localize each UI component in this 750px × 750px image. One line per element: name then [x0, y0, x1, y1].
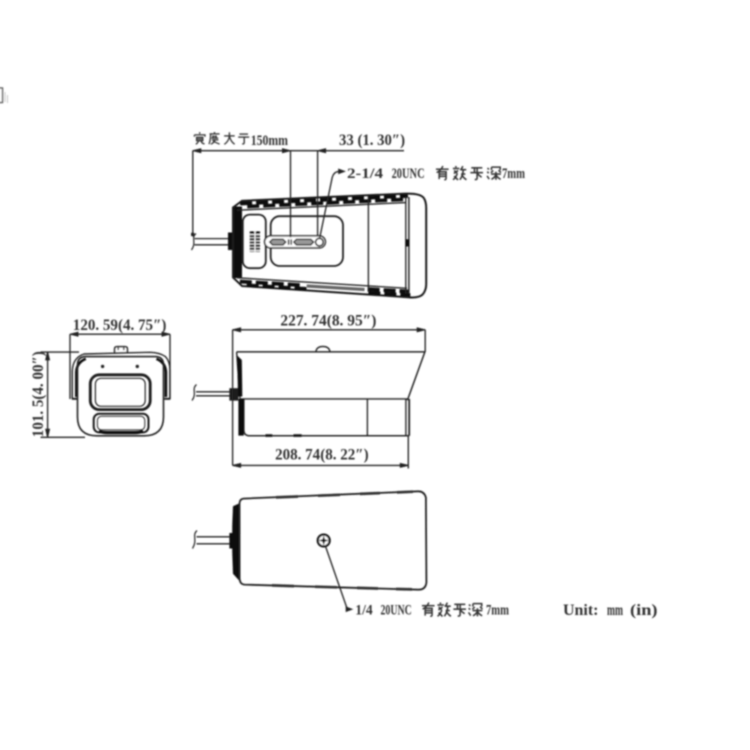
svg-text:7mm: 7mm: [486, 602, 509, 618]
svg-text:20UNC: 20UNC: [381, 602, 412, 618]
svg-text:101. 5(4. 00″): 101. 5(4. 00″): [30, 351, 47, 437]
svg-text:227. 74(8. 95″): 227. 74(8. 95″): [280, 312, 376, 329]
svg-text:7mm: 7mm: [502, 166, 525, 182]
svg-text:mm: mm: [607, 602, 623, 619]
svg-text:20UNC: 20UNC: [392, 166, 425, 182]
svg-text:(in): (in): [630, 602, 658, 619]
svg-text:150mm: 150mm: [251, 133, 289, 149]
svg-text:120. 59(4. 75″): 120. 59(4. 75″): [73, 317, 167, 334]
svg-text:2-1/4: 2-1/4: [347, 166, 384, 182]
svg-text:1/4: 1/4: [355, 602, 373, 618]
svg-text:208. 74(8. 22″): 208. 74(8. 22″): [275, 447, 369, 464]
svg-text:Unit:: Unit:: [563, 602, 599, 619]
svg-text:33 (1. 30″): 33 (1. 30″): [339, 132, 405, 149]
